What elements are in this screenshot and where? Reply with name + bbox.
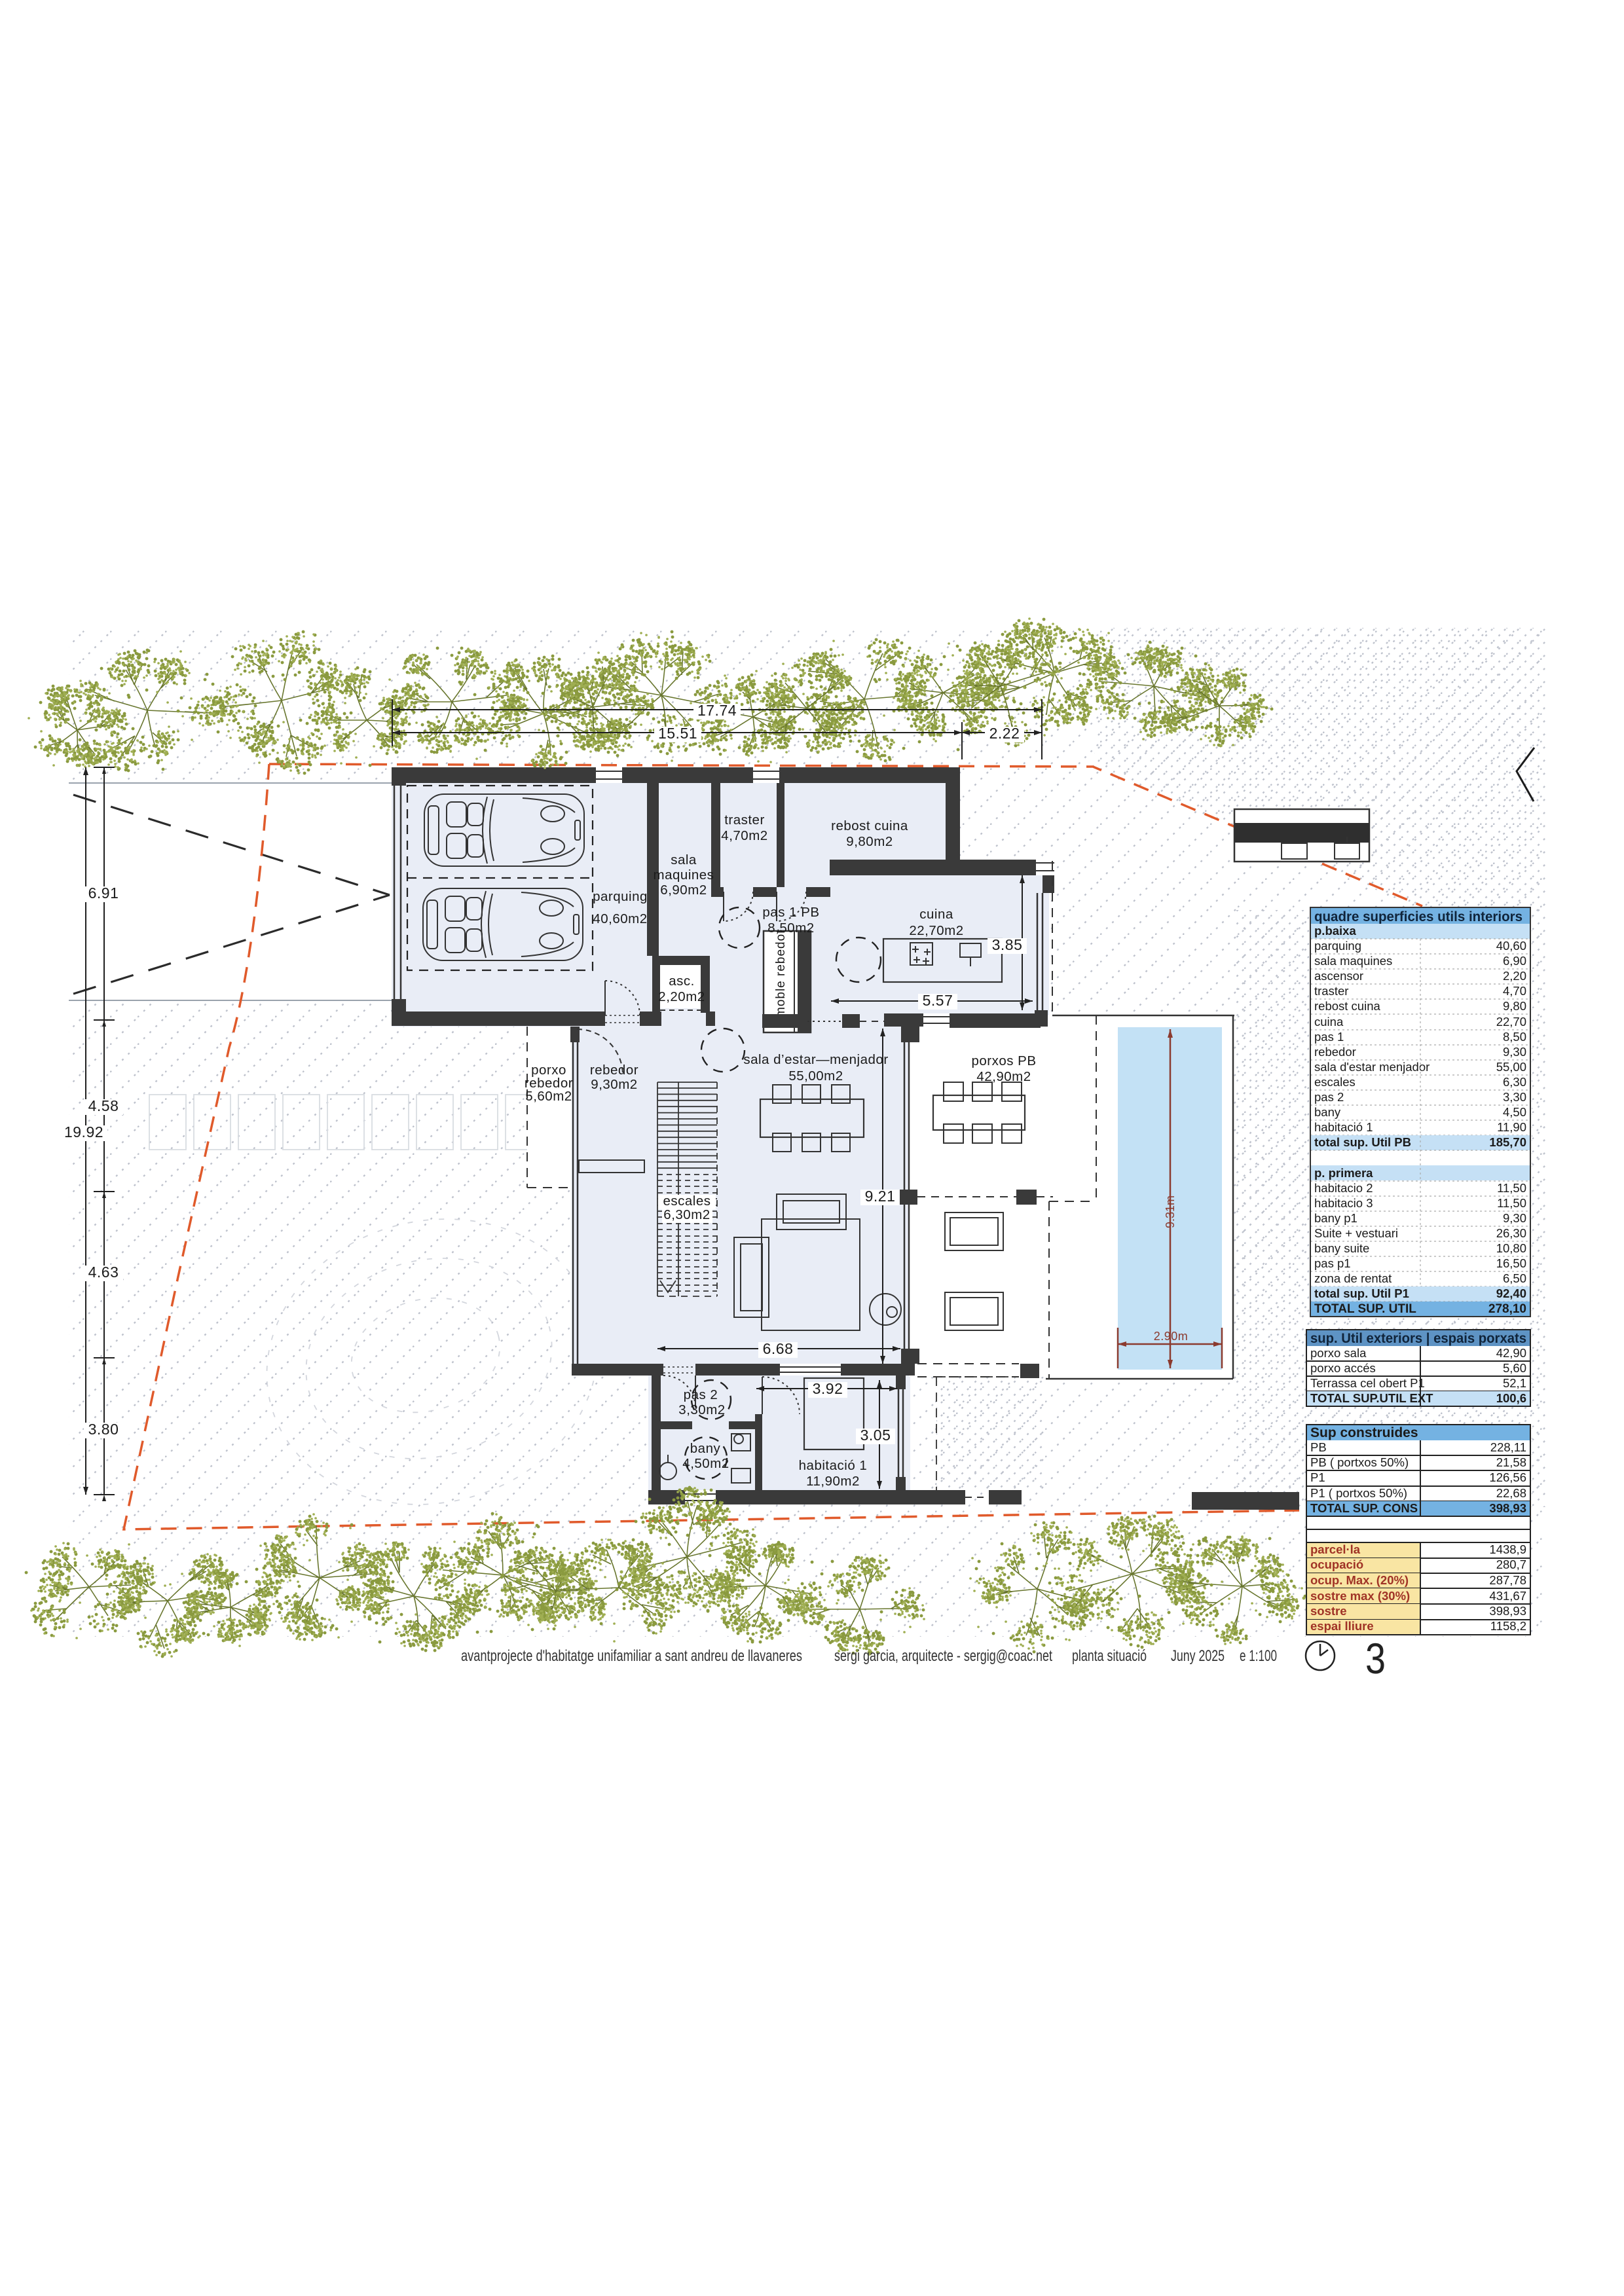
svg-text:habitació 1: habitació 1 bbox=[799, 1458, 868, 1473]
svg-text:2,20m2: 2,20m2 bbox=[658, 989, 705, 1004]
svg-text:ocup. Max. (20%): ocup. Max. (20%) bbox=[1310, 1573, 1409, 1587]
svg-text:sup. Util exteriors | espais p: sup. Util exteriors | espais porxats bbox=[1310, 1331, 1526, 1346]
svg-text:quadre superficies utils inter: quadre superficies utils interiors bbox=[1314, 909, 1522, 924]
svg-text:5,60: 5,60 bbox=[1503, 1361, 1526, 1375]
svg-text:8,50m2: 8,50m2 bbox=[767, 920, 814, 936]
svg-text:2.90m: 2.90m bbox=[1154, 1330, 1189, 1343]
svg-text:total sup. Util P1: total sup. Util P1 bbox=[1314, 1286, 1409, 1300]
svg-text:sostre: sostre bbox=[1310, 1604, 1347, 1618]
svg-text:total sup. Util PB: total sup. Util PB bbox=[1314, 1135, 1411, 1149]
svg-text:parquing: parquing bbox=[1314, 939, 1361, 953]
svg-text:pas 2: pas 2 bbox=[1314, 1090, 1344, 1104]
svg-text:porxo sala: porxo sala bbox=[1310, 1346, 1367, 1360]
svg-text:habitacio 3: habitacio 3 bbox=[1314, 1196, 1373, 1210]
svg-text:1438,9: 1438,9 bbox=[1489, 1542, 1526, 1556]
svg-text:3.05: 3.05 bbox=[860, 1427, 891, 1444]
svg-text:asc.: asc. bbox=[669, 974, 695, 989]
svg-text:8,50: 8,50 bbox=[1503, 1030, 1526, 1044]
svg-text:bany: bany bbox=[1314, 1105, 1341, 1119]
svg-text:zona de rentat: zona de rentat bbox=[1314, 1271, 1392, 1285]
svg-text:100,6: 100,6 bbox=[1496, 1391, 1526, 1405]
svg-text:porxos PB: porxos PB bbox=[971, 1053, 1036, 1068]
svg-text:Juny 2025: Juny 2025 bbox=[1171, 1647, 1225, 1665]
svg-text:escales: escales bbox=[1314, 1075, 1356, 1089]
svg-text:pas 2: pas 2 bbox=[684, 1387, 718, 1402]
svg-text:431,67: 431,67 bbox=[1489, 1589, 1526, 1603]
svg-text:ascensor: ascensor bbox=[1314, 969, 1363, 983]
svg-text:4.63: 4.63 bbox=[88, 1264, 119, 1281]
svg-text:maquines: maquines bbox=[654, 867, 714, 883]
svg-text:3.92: 3.92 bbox=[813, 1380, 843, 1397]
svg-text:pas 1: pas 1 bbox=[1314, 1030, 1344, 1044]
svg-text:traster: traster bbox=[1314, 984, 1348, 998]
svg-text:habitacio 2: habitacio 2 bbox=[1314, 1181, 1373, 1195]
svg-text:habitació 1: habitació 1 bbox=[1314, 1120, 1373, 1134]
svg-text:10,80: 10,80 bbox=[1496, 1241, 1526, 1255]
svg-text:bany: bany bbox=[690, 1441, 721, 1456]
svg-text:PB: PB bbox=[1310, 1440, 1327, 1454]
svg-text:6,90m2: 6,90m2 bbox=[660, 883, 707, 898]
svg-text:280,7: 280,7 bbox=[1496, 1558, 1526, 1571]
svg-text:9.31m: 9.31m bbox=[1164, 1195, 1177, 1228]
svg-text:9,80m2: 9,80m2 bbox=[846, 834, 893, 849]
svg-text:22,70: 22,70 bbox=[1496, 1015, 1526, 1029]
svg-text:11,50: 11,50 bbox=[1497, 1196, 1526, 1210]
svg-text:sala maquines: sala maquines bbox=[1314, 954, 1392, 968]
svg-text:4.58: 4.58 bbox=[88, 1097, 119, 1114]
svg-text:3.80: 3.80 bbox=[88, 1421, 119, 1438]
svg-text:9,80: 9,80 bbox=[1503, 999, 1526, 1013]
svg-text:moble rebedor: moble rebedor bbox=[774, 928, 788, 1017]
svg-text:398,93: 398,93 bbox=[1489, 1501, 1526, 1515]
svg-text:TOTAL SUP.UTIL EXT: TOTAL SUP.UTIL EXT bbox=[1310, 1391, 1433, 1405]
svg-text:Terrassa cel obert P1: Terrassa cel obert P1 bbox=[1310, 1376, 1425, 1390]
svg-text:TOTAL SUP. CONS: TOTAL SUP. CONS bbox=[1310, 1501, 1418, 1515]
svg-text:rebedor: rebedor bbox=[590, 1063, 638, 1078]
svg-text:9,30: 9,30 bbox=[1503, 1211, 1526, 1225]
svg-text:42,90m2: 42,90m2 bbox=[976, 1069, 1031, 1084]
svg-text:PB ( portxos 50%): PB ( portxos 50%) bbox=[1310, 1455, 1409, 1469]
svg-text:P1 ( portxos 50%): P1 ( portxos 50%) bbox=[1310, 1486, 1407, 1500]
svg-text:3: 3 bbox=[1365, 1634, 1386, 1683]
svg-text:3,30m2: 3,30m2 bbox=[678, 1402, 725, 1417]
svg-text:92,40: 92,40 bbox=[1496, 1286, 1526, 1300]
svg-text:cuina: cuina bbox=[1314, 1015, 1344, 1029]
svg-text:4,70m2: 4,70m2 bbox=[721, 828, 767, 843]
svg-text:cuina: cuina bbox=[919, 907, 953, 922]
svg-text:pas p1: pas p1 bbox=[1314, 1256, 1351, 1270]
svg-text:3,30: 3,30 bbox=[1503, 1090, 1526, 1104]
svg-text:185,70: 185,70 bbox=[1489, 1135, 1526, 1149]
svg-text:p. primera: p. primera bbox=[1314, 1166, 1373, 1180]
svg-text:6,90: 6,90 bbox=[1503, 954, 1526, 968]
svg-text:15.51: 15.51 bbox=[658, 725, 697, 742]
svg-text:pas 1 PB: pas 1 PB bbox=[762, 905, 819, 920]
svg-text:rebost cuina: rebost cuina bbox=[1314, 999, 1380, 1013]
svg-text:5.57: 5.57 bbox=[923, 992, 953, 1009]
svg-text:6,30: 6,30 bbox=[1503, 1075, 1526, 1089]
svg-text:parcel·la: parcel·la bbox=[1310, 1542, 1361, 1556]
svg-text:52,1: 52,1 bbox=[1503, 1376, 1526, 1390]
svg-text:P1: P1 bbox=[1310, 1470, 1325, 1484]
svg-text:11,90: 11,90 bbox=[1497, 1120, 1526, 1134]
svg-text:9.21: 9.21 bbox=[865, 1188, 896, 1205]
svg-text:rebedor: rebedor bbox=[1314, 1045, 1356, 1059]
svg-text:e 1:100: e 1:100 bbox=[1240, 1647, 1277, 1665]
svg-text:sala: sala bbox=[671, 852, 697, 867]
svg-text:sergi garcia, arquitecte - ser: sergi garcia, arquitecte - sergig@coac.n… bbox=[834, 1647, 1052, 1665]
svg-text:avantprojecte d'habitatge unif: avantprojecte d'habitatge unifamiliar a … bbox=[461, 1647, 802, 1665]
svg-text:11,50: 11,50 bbox=[1497, 1181, 1526, 1195]
svg-text:ocupació: ocupació bbox=[1310, 1558, 1363, 1571]
svg-text:Sup construides: Sup construides bbox=[1310, 1425, 1418, 1440]
svg-text:6,50: 6,50 bbox=[1503, 1271, 1526, 1285]
svg-text:17.74: 17.74 bbox=[697, 702, 737, 719]
svg-text:55,00: 55,00 bbox=[1496, 1060, 1526, 1074]
svg-text:40,60: 40,60 bbox=[1496, 939, 1526, 953]
svg-text:9,30: 9,30 bbox=[1503, 1045, 1526, 1059]
svg-text:p.baixa: p.baixa bbox=[1314, 924, 1356, 938]
svg-text:traster: traster bbox=[724, 812, 765, 828]
svg-text:sostre max (30%): sostre max (30%) bbox=[1310, 1589, 1410, 1603]
svg-text:398,93: 398,93 bbox=[1489, 1604, 1526, 1618]
svg-text:Suite + vestuari: Suite + vestuari bbox=[1314, 1226, 1398, 1240]
svg-text:278,10: 278,10 bbox=[1488, 1302, 1526, 1316]
svg-text:22,70m2: 22,70m2 bbox=[909, 923, 963, 938]
svg-text:sala d’estar—menjador: sala d’estar—menjador bbox=[743, 1052, 888, 1067]
svg-text:55,00m2: 55,00m2 bbox=[788, 1068, 843, 1084]
svg-text:22,68: 22,68 bbox=[1496, 1486, 1526, 1500]
svg-text:rebost cuina: rebost cuina bbox=[831, 818, 908, 833]
svg-text:4,50m2: 4,50m2 bbox=[682, 1456, 729, 1471]
svg-text:40,60m2: 40,60m2 bbox=[593, 911, 647, 926]
svg-text:6.68: 6.68 bbox=[763, 1340, 794, 1357]
svg-text:21,58: 21,58 bbox=[1496, 1455, 1526, 1469]
svg-text:parquing: parquing bbox=[593, 889, 648, 904]
svg-text:planta situació: planta situació bbox=[1072, 1647, 1147, 1665]
svg-text:bany p1: bany p1 bbox=[1314, 1211, 1357, 1225]
svg-text:16,50: 16,50 bbox=[1496, 1256, 1526, 1270]
svg-text:4,50: 4,50 bbox=[1503, 1105, 1526, 1119]
svg-text:6.91: 6.91 bbox=[88, 884, 119, 902]
svg-text:19.92: 19.92 bbox=[64, 1123, 103, 1140]
svg-text:espai lliure: espai lliure bbox=[1310, 1619, 1374, 1633]
svg-text:sala d'estar menjador: sala d'estar menjador bbox=[1314, 1060, 1430, 1074]
svg-text:4,70: 4,70 bbox=[1503, 984, 1526, 998]
svg-text:5,60m2: 5,60m2 bbox=[525, 1089, 572, 1104]
svg-text:9,30m2: 9,30m2 bbox=[591, 1077, 637, 1092]
svg-text:287,78: 287,78 bbox=[1489, 1573, 1526, 1587]
svg-text:6,30m2: 6,30m2 bbox=[663, 1207, 710, 1222]
svg-text:228,11: 228,11 bbox=[1490, 1440, 1526, 1454]
svg-text:2,20: 2,20 bbox=[1503, 969, 1526, 983]
svg-text:3.85: 3.85 bbox=[992, 936, 1023, 953]
svg-text:2.22: 2.22 bbox=[989, 725, 1020, 742]
svg-text:126,56: 126,56 bbox=[1489, 1470, 1526, 1484]
svg-text:26,30: 26,30 bbox=[1496, 1226, 1526, 1240]
svg-text:escales: escales bbox=[663, 1194, 710, 1209]
svg-text:TOTAL SUP. UTIL: TOTAL SUP. UTIL bbox=[1314, 1302, 1416, 1316]
svg-text:bany suite: bany suite bbox=[1314, 1241, 1369, 1255]
svg-text:42,90: 42,90 bbox=[1496, 1346, 1526, 1360]
svg-text:11,90m2: 11,90m2 bbox=[806, 1474, 860, 1489]
svg-text:1158,2: 1158,2 bbox=[1490, 1619, 1526, 1633]
svg-text:porxo accés: porxo accés bbox=[1310, 1361, 1376, 1375]
